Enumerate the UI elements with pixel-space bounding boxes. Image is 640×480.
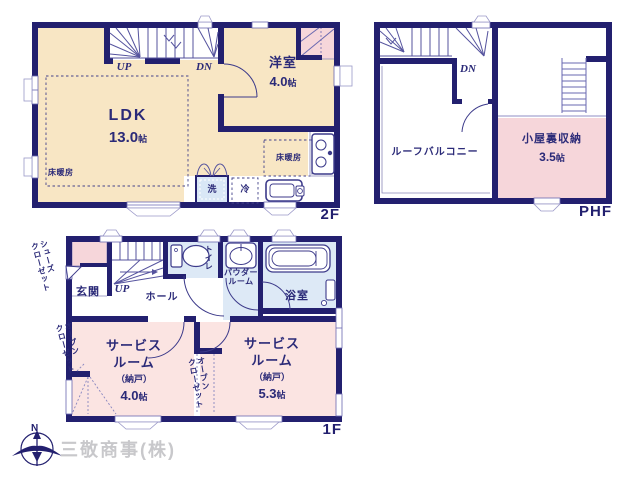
stairs-dn-label-2f: DN (190, 61, 218, 74)
floorplan-page: UP DN LDK 13.0帖 洋室 4.0帖 床暖房 床暖房 洗 冷 2F D… (0, 0, 640, 480)
floor-heating-label-1: 床暖房 (48, 168, 74, 177)
floorplan-drawing (0, 0, 640, 480)
room-label-genkan: 玄関 (70, 286, 106, 299)
room-label-ldk: LDK 13.0帖 (88, 107, 168, 148)
room-label-yoshitsu: 洋室 4.0帖 (252, 56, 314, 91)
fridge-label: 冷 (238, 184, 252, 194)
room-label-service1: サービス ルーム （納戸） 4.0帖 (84, 339, 184, 406)
room-label-powder: パウダー ルーム (221, 268, 261, 286)
bathtub-icon (266, 245, 330, 272)
room-label-toilet: トイレ (204, 245, 213, 277)
kitchen-sink-icon (266, 180, 304, 201)
room-label-attic: 小屋裏収納 3.5帖 (505, 133, 599, 166)
stove-icon (312, 134, 334, 174)
floor-label-1f: 1F (316, 421, 342, 438)
powder-sink-icon (226, 243, 256, 268)
floor-label-2f: 2F (314, 206, 340, 223)
room-label-service2: サービス ルーム （納戸） 5.3帖 (220, 337, 324, 404)
stairs-up-label-2f: UP (110, 61, 138, 74)
compass-icon (12, 430, 62, 466)
washer-label: 洗 (205, 184, 219, 194)
phf-plan (374, 16, 612, 211)
room-label-bath: 浴室 (276, 290, 318, 303)
compass-north-label: N (31, 423, 38, 435)
stairs-up-label-1f: UP (108, 283, 136, 296)
floor2-plan (24, 16, 352, 216)
stairs-dn-label-phf: DN (454, 63, 482, 76)
room-label-hall: ホール (134, 292, 190, 304)
bedroom-closet (298, 26, 336, 59)
room-label-roof-balcony: ルーフバルコニー (384, 147, 486, 159)
floor-heating-label-2: 床暖房 (276, 153, 302, 162)
floor-label-phf: PHF (578, 203, 612, 220)
company-name: 三敬商事(株) (60, 440, 176, 461)
